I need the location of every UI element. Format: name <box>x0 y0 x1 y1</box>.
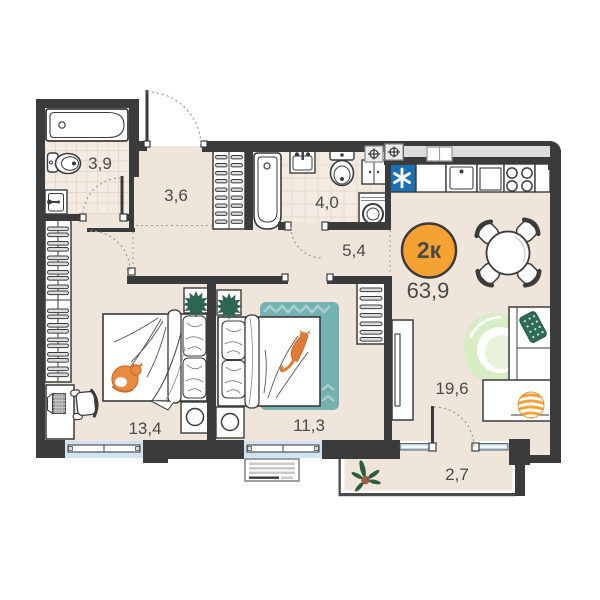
svg-text:3,9: 3,9 <box>88 154 112 173</box>
svg-text:63,9: 63,9 <box>407 278 450 303</box>
svg-text:13,4: 13,4 <box>128 419 161 438</box>
svg-text:2,7: 2,7 <box>445 465 469 484</box>
svg-text:2к: 2к <box>417 237 442 263</box>
svg-text:19,6: 19,6 <box>435 379 468 398</box>
svg-text:5,4: 5,4 <box>342 241 366 260</box>
svg-text:11,3: 11,3 <box>293 416 325 435</box>
svg-text:3,6: 3,6 <box>164 186 188 205</box>
svg-text:4,0: 4,0 <box>315 193 339 212</box>
